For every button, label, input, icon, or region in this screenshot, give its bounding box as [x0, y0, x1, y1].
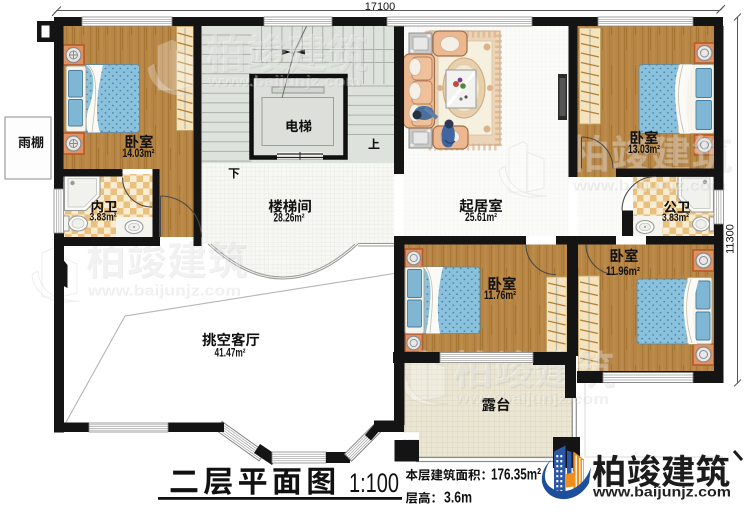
svg-text:25.61m²: 25.61m² — [465, 212, 497, 224]
svg-text:www.baijunjz.com: www.baijunjz.com — [454, 390, 608, 407]
svg-text:14.03m²: 14.03m² — [123, 148, 155, 160]
svg-text:www.baijunjz.com: www.baijunjz.com — [592, 485, 731, 500]
svg-text:3.83m²: 3.83m² — [90, 212, 117, 224]
svg-text:1:100: 1:100 — [349, 468, 399, 498]
svg-text:11300: 11300 — [725, 224, 737, 254]
svg-text:www.baijunjz.com: www.baijunjz.com — [571, 177, 725, 194]
svg-text:28.26m²: 28.26m² — [274, 213, 305, 225]
svg-text:3.83m²: 3.83m² — [662, 212, 689, 224]
svg-text:176.35m²: 176.35m² — [491, 467, 541, 484]
svg-text:www.baijunjz.com: www.baijunjz.com — [207, 73, 361, 90]
svg-text:11.76m²: 11.76m² — [484, 290, 516, 302]
svg-text:41.47m²: 41.47m² — [215, 348, 246, 360]
svg-text:17100: 17100 — [365, 1, 396, 13]
svg-text:3.6m: 3.6m — [444, 490, 472, 507]
svg-text:www.baijunjz.com: www.baijunjz.com — [86, 282, 240, 299]
svg-text:13.03m²: 13.03m² — [628, 144, 660, 156]
svg-text:11.96m²: 11.96m² — [606, 266, 640, 278]
